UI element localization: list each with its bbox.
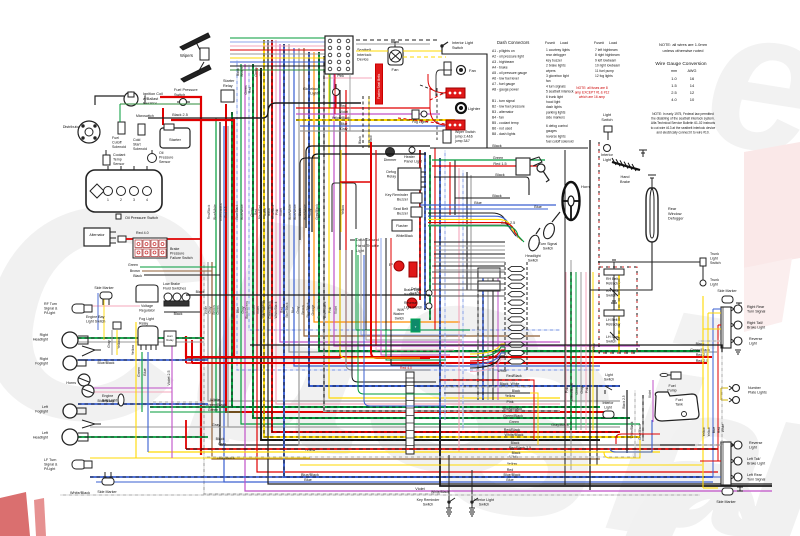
svg-text:Starter: Starter xyxy=(169,137,182,142)
svg-text:Turn Signal: Turn Signal xyxy=(747,478,765,482)
svg-text:parking lights: parking lights xyxy=(546,110,566,114)
svg-text:White: White xyxy=(259,68,263,76)
svg-text:Violet: Violet xyxy=(415,487,425,491)
svg-text:Gray: Gray xyxy=(340,127,347,131)
svg-text:6 trunk light: 6 trunk light xyxy=(546,95,563,99)
svg-text:Fan: Fan xyxy=(392,67,399,72)
svg-text:Cutoff: Cutoff xyxy=(112,141,122,145)
svg-text:Dimmer: Dimmer xyxy=(384,158,397,162)
svg-text:Trunk: Trunk xyxy=(710,252,719,256)
svg-text:Yellow: Yellow xyxy=(131,344,135,355)
svg-text:Reverse: Reverse xyxy=(749,441,762,445)
svg-text:White/Black: White/Black xyxy=(274,301,278,318)
svg-text:Red/Black: Red/Black xyxy=(504,428,521,432)
svg-text:Brake Light: Brake Light xyxy=(747,326,765,330)
svg-text:Blue: Blue xyxy=(506,478,513,482)
svg-text:White/Black: White/Black xyxy=(431,490,449,494)
svg-text:Starter: Starter xyxy=(223,79,235,83)
svg-text:Sensor: Sensor xyxy=(159,160,171,164)
svg-text:Yellow: Yellow xyxy=(505,394,516,398)
svg-text:9 left lowbeam: 9 left lowbeam xyxy=(595,58,617,62)
svg-text:Light: Light xyxy=(710,257,718,261)
svg-text:A1 - p/lights on: A1 - p/lights on xyxy=(492,49,515,53)
svg-text:Black: Black xyxy=(495,173,504,177)
svg-text:Red: Red xyxy=(280,307,284,313)
svg-text:Side Marker: Side Marker xyxy=(717,289,737,293)
svg-text:NOTE: all wires are 1.0mm: NOTE: all wires are 1.0mm xyxy=(659,42,708,47)
svg-text:Tank: Tank xyxy=(675,403,683,407)
svg-text:unless otherwise noted: unless otherwise noted xyxy=(663,48,704,53)
svg-text:A8 - gauge power: A8 - gauge power xyxy=(492,88,520,92)
svg-text:A4 - brake: A4 - brake xyxy=(492,66,508,70)
svg-text:Signal &: Signal & xyxy=(44,307,58,311)
svg-text:Plate Lights: Plate Lights xyxy=(748,391,767,395)
svg-text:Regulator: Regulator xyxy=(139,309,155,313)
svg-text:Oil: Oil xyxy=(159,151,164,155)
svg-text:Yellow: Yellow xyxy=(592,343,596,353)
svg-text:Blue/Black: Blue/Black xyxy=(306,302,310,317)
svg-text:Red: Red xyxy=(507,468,514,472)
svg-text:Fuel: Fuel xyxy=(676,398,683,402)
svg-text:side markers: side markers xyxy=(546,116,565,120)
svg-text:Black 2.5: Black 2.5 xyxy=(622,395,626,408)
svg-text:Black: Black xyxy=(512,389,521,393)
svg-text:Wire Gauge Conversion: Wire Gauge Conversion xyxy=(655,61,707,67)
svg-text:Light Switch: Light Switch xyxy=(404,305,422,309)
svg-text:Blue/White: Blue/White xyxy=(288,204,292,220)
svg-text:B5 - coolant temp: B5 - coolant temp xyxy=(492,121,519,125)
svg-text:Gray: Gray xyxy=(296,306,300,313)
svg-text:Left: Left xyxy=(42,405,48,409)
svg-text:Red 2.5: Red 2.5 xyxy=(224,206,228,217)
svg-text:B6 - not used: B6 - not used xyxy=(492,127,512,131)
svg-text:2 brake lights: 2 brake lights xyxy=(546,64,566,68)
svg-text:Failure Switch: Failure Switch xyxy=(170,256,193,260)
svg-text:fan: fan xyxy=(546,79,551,83)
svg-text:Red: Red xyxy=(340,104,346,108)
svg-text:Turn Signal: Turn Signal xyxy=(747,310,765,314)
svg-text:12 fog lights: 12 fog lights xyxy=(595,74,613,78)
svg-text:Blue/Black: Blue/Black xyxy=(98,361,115,365)
svg-text:Relay: Relay xyxy=(223,84,233,88)
svg-text:Yellow: Yellow xyxy=(702,427,706,437)
svg-text:Defog: Defog xyxy=(386,170,396,174)
svg-text:1: 1 xyxy=(107,198,109,202)
svg-text:Headlight: Headlight xyxy=(33,338,48,342)
svg-text:reverse lights: reverse lights xyxy=(546,134,566,138)
svg-text:Heater: Heater xyxy=(404,155,416,159)
svg-text:Dash Ground: Dash Ground xyxy=(356,238,379,242)
svg-text:Interior: Interior xyxy=(601,153,614,157)
svg-text:A2 - oil pressure light: A2 - oil pressure light xyxy=(492,55,524,59)
svg-text:Coolant: Coolant xyxy=(113,153,125,157)
svg-text:Retractor: Retractor xyxy=(606,323,621,327)
svg-text:gauges: gauges xyxy=(546,129,557,133)
svg-text:Brown: Brown xyxy=(301,305,305,314)
svg-text:Blue/Black: Blue/Black xyxy=(285,302,289,317)
svg-text:Blue: Blue xyxy=(712,427,716,434)
svg-text:Buzzer: Buzzer xyxy=(397,212,409,216)
svg-text:1.0: 1.0 xyxy=(671,76,677,81)
svg-text:White/Black: White/Black xyxy=(323,301,327,318)
svg-text:Distributor: Distributor xyxy=(63,125,81,129)
svg-text:Blue/White: Blue/White xyxy=(240,204,244,220)
svg-text:Switch: Switch xyxy=(601,118,612,122)
svg-text:Low Brake: Low Brake xyxy=(163,282,180,286)
svg-text:Red/Black: Red/Black xyxy=(207,204,211,219)
svg-text:White: White xyxy=(721,424,725,432)
svg-text:Fasten Seat Belts: Fasten Seat Belts xyxy=(377,73,381,99)
svg-text:3 glovebox light: 3 glovebox light xyxy=(546,74,569,78)
svg-text:4.0: 4.0 xyxy=(671,97,677,102)
svg-text:Device: Device xyxy=(357,58,369,62)
svg-text:Interior Light: Interior Light xyxy=(474,498,494,502)
svg-text:Green/Black: Green/Black xyxy=(570,383,574,401)
svg-text:Light: Light xyxy=(604,406,612,410)
svg-text:wipers: wipers xyxy=(546,69,556,73)
svg-text:Interior Light: Interior Light xyxy=(452,41,474,45)
svg-text:Red 4.0: Red 4.0 xyxy=(400,366,412,370)
svg-text:Window: Window xyxy=(668,212,682,216)
svg-text:Ignition Coil: Ignition Coil xyxy=(143,92,163,96)
svg-text:fuel cutoff solenoid: fuel cutoff solenoid xyxy=(546,140,574,144)
svg-text:Switch: Switch xyxy=(174,93,185,97)
svg-text:Cold: Cold xyxy=(133,138,140,142)
svg-text:White/Black: White/Black xyxy=(505,433,524,437)
svg-text:Black: Black xyxy=(492,144,501,148)
svg-text:Panel Light: Panel Light xyxy=(404,160,422,164)
svg-text:Dash Connectors: Dash Connectors xyxy=(497,40,529,45)
svg-text:Yellow/Black: Yellow/Black xyxy=(261,301,265,319)
svg-text:Black: Black xyxy=(216,437,225,441)
svg-text:Green: Green xyxy=(254,67,258,76)
svg-text:White/Black: White/Black xyxy=(70,491,90,495)
svg-text:Black/Green: Black/Green xyxy=(231,301,235,319)
svg-text:Wipers: Wipers xyxy=(180,53,193,58)
svg-text:NOTE: In early 1975, Federal l: NOTE: In early 1975, Federal law permitt… xyxy=(652,112,714,116)
svg-text:Light: Light xyxy=(749,446,757,450)
svg-text:Signal &: Signal & xyxy=(44,463,58,467)
svg-text:Lighter: Lighter xyxy=(468,106,481,111)
svg-text:jump 3&7: jump 3&7 xyxy=(454,139,470,143)
svg-text:amp EXCEPT #1 & #12: amp EXCEPT #1 & #12 xyxy=(575,91,610,95)
svg-text:hood light: hood light xyxy=(546,100,560,104)
svg-text:Wiper Switch: Wiper Switch xyxy=(455,130,475,134)
svg-text:Horn: Horn xyxy=(581,184,590,189)
svg-text:Red/Black: Red/Black xyxy=(506,374,522,378)
svg-text:Fuel: Fuel xyxy=(669,384,676,388)
svg-text:Side Marker: Side Marker xyxy=(97,490,117,494)
svg-text:Gray: Gray xyxy=(218,442,226,446)
svg-text:Rear: Rear xyxy=(668,207,677,211)
svg-text:Pink: Pink xyxy=(328,306,332,313)
svg-text:1 courtesy lights: 1 courtesy lights xyxy=(546,48,570,52)
svg-text:dash lights: dash lights xyxy=(546,105,562,109)
svg-text:Blue: Blue xyxy=(474,201,482,205)
svg-text:11 fuel pump: 11 fuel pump xyxy=(595,69,614,73)
svg-text:Fog Light: Fog Light xyxy=(139,317,154,321)
svg-text:Fuel: Fuel xyxy=(112,136,119,140)
svg-text:Left Tail/: Left Tail/ xyxy=(747,457,760,461)
svg-text:Glovebox: Glovebox xyxy=(303,87,318,91)
svg-text:Brake: Brake xyxy=(170,247,179,251)
svg-text:Fuse#: Fuse# xyxy=(545,41,555,45)
svg-text:Switch: Switch xyxy=(606,340,616,344)
svg-text:Trunk: Trunk xyxy=(710,278,719,282)
svg-text:Black: Black xyxy=(196,290,205,294)
svg-text:NOTE: all fuses are 8: NOTE: all fuses are 8 xyxy=(576,86,608,90)
svg-text:Black 2.5: Black 2.5 xyxy=(172,113,188,117)
svg-text:Relay: Relay xyxy=(387,175,396,179)
svg-text:Gray: Gray xyxy=(107,340,111,348)
svg-text:4: 4 xyxy=(146,198,148,202)
svg-text:Right Rear: Right Rear xyxy=(747,305,765,309)
svg-text:Light: Light xyxy=(310,92,318,96)
svg-text:Green: Green xyxy=(137,367,141,377)
svg-text:Yellow: Yellow xyxy=(707,427,711,437)
svg-text:Green/Black: Green/Black xyxy=(317,301,321,319)
svg-text:Turn Signal: Turn Signal xyxy=(539,242,557,246)
svg-text:A5 - oil pressure gauge: A5 - oil pressure gauge xyxy=(492,71,527,75)
svg-text:Brake Light: Brake Light xyxy=(404,288,421,292)
svg-text:Key Reminder: Key Reminder xyxy=(417,498,441,502)
svg-text:Blue: Blue xyxy=(534,205,542,209)
svg-text:Red 2.5: Red 2.5 xyxy=(696,353,709,357)
svg-text:Start: Start xyxy=(133,143,141,147)
svg-text:Retractor: Retractor xyxy=(606,282,621,286)
svg-text:Blue: Blue xyxy=(291,307,295,314)
svg-text:Solenoid: Solenoid xyxy=(133,147,147,151)
svg-text:Foglight: Foglight xyxy=(35,362,48,366)
svg-text:Red 2.5: Red 2.5 xyxy=(696,359,709,363)
svg-text:A6 - low fuel level: A6 - low fuel level xyxy=(492,77,519,81)
svg-text:Side Marker: Side Marker xyxy=(716,500,736,504)
svg-text:Side Marker: Side Marker xyxy=(94,286,114,290)
svg-text:Switch: Switch xyxy=(528,259,539,263)
svg-text:3: 3 xyxy=(133,198,135,202)
svg-text:Green: Green xyxy=(216,305,220,314)
svg-text:Light: Light xyxy=(710,283,718,287)
svg-text:A7 - fuel gauge: A7 - fuel gauge xyxy=(492,82,515,86)
svg-text:10 right lowbeam: 10 right lowbeam xyxy=(595,64,620,68)
svg-text:Sensor: Sensor xyxy=(113,162,125,166)
svg-text:P/Light: P/Light xyxy=(44,467,55,471)
svg-text:8 right highbeam: 8 right highbeam xyxy=(595,53,620,57)
svg-text:B2 - low fuel pressure: B2 - low fuel pressure xyxy=(492,105,525,109)
svg-text:Foglight: Foglight xyxy=(35,410,48,414)
svg-text:Blue/Black: Blue/Black xyxy=(504,473,521,477)
svg-text:Green/Black: Green/Black xyxy=(219,203,223,221)
svg-text:mm: mm xyxy=(671,69,677,73)
svg-text:White/Black: White/Black xyxy=(630,421,634,438)
svg-text:LH Belt: LH Belt xyxy=(606,318,618,322)
svg-text:Yellow/Black: Yellow/Black xyxy=(502,407,522,411)
svg-text:Black/Green: Black/Green xyxy=(245,301,249,319)
svg-text:Switch: Switch xyxy=(604,378,614,382)
svg-text:Flasher: Flasher xyxy=(396,224,409,228)
svg-text:5 seatbelt interlock: 5 seatbelt interlock xyxy=(546,90,574,94)
svg-text:Interlock: Interlock xyxy=(357,53,371,57)
svg-text:Black: Black xyxy=(500,382,509,386)
svg-text:Violet: Violet xyxy=(256,306,260,314)
svg-text:B8 - dash lights: B8 - dash lights xyxy=(492,132,516,136)
svg-text:White/Black: White/Black xyxy=(396,234,413,238)
svg-text:Blue: Blue xyxy=(236,307,240,314)
svg-text:Pink: Pink xyxy=(507,400,514,404)
svg-text:Interior: Interior xyxy=(603,401,615,405)
svg-text:Black: Black xyxy=(174,312,183,316)
svg-text:Green/Black: Green/Black xyxy=(206,403,227,407)
svg-text:Light: Light xyxy=(603,158,612,162)
svg-text:Blue: Blue xyxy=(143,368,147,375)
svg-text:B3 - alternator: B3 - alternator xyxy=(492,110,514,114)
svg-text:Headlight: Headlight xyxy=(525,254,540,258)
svg-text:Light: Light xyxy=(603,113,612,117)
svg-text:Green: Green xyxy=(208,408,219,412)
svg-text:Pump: Pump xyxy=(667,389,676,393)
svg-text:1.5: 1.5 xyxy=(671,83,677,88)
svg-text:14: 14 xyxy=(690,83,695,88)
svg-text:Pink: Pink xyxy=(565,386,569,393)
svg-text:Reverse: Reverse xyxy=(749,337,762,341)
svg-text:Pressure: Pressure xyxy=(159,156,173,160)
svg-text:Gray/Black: Gray/Black xyxy=(315,204,319,220)
svg-text:Switch: Switch xyxy=(395,316,405,320)
svg-text:Load: Load xyxy=(609,41,617,45)
svg-text:Pressure: Pressure xyxy=(170,252,184,256)
svg-text:Switch: Switch xyxy=(543,247,554,251)
svg-text:LH Seat: LH Seat xyxy=(606,335,619,339)
svg-text:rear defogger: rear defogger xyxy=(546,53,567,57)
svg-text:Blue: Blue xyxy=(304,478,312,482)
svg-text:P/Light: P/Light xyxy=(44,311,55,315)
svg-text:Switch: Switch xyxy=(423,503,434,507)
svg-text:Green: Green xyxy=(509,420,519,424)
svg-text:Black: Black xyxy=(511,441,520,445)
svg-text:Key Reminder: Key Reminder xyxy=(385,193,409,197)
svg-text:Reverse: Reverse xyxy=(404,301,417,305)
svg-text:Gray: Gray xyxy=(212,423,220,427)
svg-text:LF Turn: LF Turn xyxy=(44,458,56,462)
svg-text:Horns: Horns xyxy=(66,381,76,385)
svg-text:Seat Belt: Seat Belt xyxy=(393,207,408,211)
svg-text:Temp: Temp xyxy=(113,158,122,162)
svg-text:Relay: Relay xyxy=(139,322,148,326)
svg-text:Voltage: Voltage xyxy=(141,304,153,308)
svg-text:Brake Light: Brake Light xyxy=(747,462,765,466)
svg-text:T: T xyxy=(415,325,417,329)
svg-text:Load: Load xyxy=(560,41,568,45)
svg-text:Green: Green xyxy=(575,385,579,394)
svg-text:White: White xyxy=(210,398,220,402)
svg-text:Violet 2.5: Violet 2.5 xyxy=(167,371,171,386)
svg-text:Brown: Brown xyxy=(240,67,244,76)
svg-text:Pink: Pink xyxy=(585,386,589,393)
svg-text:Switch: Switch xyxy=(479,503,490,507)
svg-text:Light Switch: Light Switch xyxy=(86,320,105,324)
svg-text:RF Turn: RF Turn xyxy=(44,302,57,306)
svg-text:Fuse#: Fuse# xyxy=(594,41,604,45)
svg-text:Blue/White: Blue/White xyxy=(213,204,217,220)
svg-text:Green/Black: Green/Black xyxy=(268,301,272,319)
svg-text:AWG: AWG xyxy=(688,69,697,73)
svg-text:Oil Pressure Switch: Oil Pressure Switch xyxy=(125,216,158,220)
svg-text:Light: Light xyxy=(605,373,613,377)
svg-text:Black: Black xyxy=(133,274,142,278)
svg-text:Blue/Black: Blue/Black xyxy=(301,473,319,477)
svg-text:Red 1.5: Red 1.5 xyxy=(493,162,506,166)
svg-text:6 defog control: 6 defog control xyxy=(546,124,568,128)
svg-text:Fan: Fan xyxy=(469,68,476,73)
svg-text:Yellow: Yellow xyxy=(117,339,121,349)
svg-text:Brake: Brake xyxy=(620,180,630,184)
svg-text:4 turn signals: 4 turn signals xyxy=(546,84,566,88)
svg-text:Buzzer: Buzzer xyxy=(397,198,409,202)
svg-text:RH Belt: RH Belt xyxy=(606,277,618,281)
svg-text:Green/Black: Green/Black xyxy=(690,348,710,352)
svg-text:Yellow/Black: Yellow/Black xyxy=(332,116,351,120)
svg-text:jump 2,4&6: jump 2,4&6 xyxy=(454,135,473,139)
svg-text:Switch: Switch xyxy=(606,294,616,298)
svg-text:Headlight: Headlight xyxy=(33,436,48,440)
svg-text:Gray: Gray xyxy=(580,386,584,393)
svg-text:Violet: Violet xyxy=(279,208,283,216)
svg-text:Hand: Hand xyxy=(620,175,629,179)
svg-text:2: 2 xyxy=(120,198,122,202)
svg-text:Violet: Violet xyxy=(334,306,338,314)
svg-text:Blue: Blue xyxy=(341,122,348,126)
svg-text:Blue/Black: Blue/Black xyxy=(235,204,239,219)
svg-text:Green/Black: Green/Black xyxy=(503,414,523,418)
svg-text:and electrically connect it to: and electrically connect it to wire #10. xyxy=(657,130,710,134)
svg-text:Black/Red: Black/Red xyxy=(258,205,262,220)
svg-text:Right Tail/: Right Tail/ xyxy=(747,321,763,325)
svg-text:Green: Green xyxy=(128,263,138,267)
svg-text:Green: Green xyxy=(493,156,504,160)
svg-text:to cut wire #13 at the seatbel: to cut wire #13 at the seatbelt interloc… xyxy=(651,126,716,130)
svg-text:Violet: Violet xyxy=(340,110,348,114)
svg-text:Left Rear: Left Rear xyxy=(747,473,763,477)
svg-text:Black: Black xyxy=(492,194,501,198)
svg-text:Fluid Switches: Fluid Switches xyxy=(163,287,186,291)
svg-text:12: 12 xyxy=(690,90,695,95)
svg-text:White: White xyxy=(511,382,520,386)
svg-text:Left: Left xyxy=(42,431,48,435)
svg-text:which are 16 amp: which are 16 amp xyxy=(579,95,605,99)
svg-text:B1 - turn signal: B1 - turn signal xyxy=(492,99,515,103)
svg-text:Defogger: Defogger xyxy=(668,217,684,221)
svg-text:Blue/White: Blue/White xyxy=(293,204,297,220)
svg-text:Fuel Pressure: Fuel Pressure xyxy=(174,88,198,92)
svg-text:Engine Bay: Engine Bay xyxy=(86,315,105,319)
svg-text:Switch: Switch xyxy=(710,261,721,265)
svg-text:Red: Red xyxy=(248,87,252,93)
svg-text:key buzzer: key buzzer xyxy=(546,58,563,62)
svg-text:Engine: Engine xyxy=(102,394,113,398)
svg-text:B4 - fan: B4 - fan xyxy=(492,116,504,120)
svg-text:Right: Right xyxy=(40,357,48,361)
svg-text:Brown: Brown xyxy=(130,269,140,273)
svg-text:Violet: Violet xyxy=(648,390,652,398)
svg-text:16: 16 xyxy=(690,76,695,81)
svg-text:Light: Light xyxy=(749,342,757,346)
svg-text:7 left highbeam: 7 left highbeam xyxy=(595,48,618,52)
svg-text:Relay: Relay xyxy=(166,338,174,342)
svg-text:Solenoid: Solenoid xyxy=(112,145,126,149)
svg-text:2.5: 2.5 xyxy=(671,90,677,95)
svg-text:Orange: Orange xyxy=(311,304,315,315)
svg-text:Yellow: Yellow xyxy=(341,205,345,215)
